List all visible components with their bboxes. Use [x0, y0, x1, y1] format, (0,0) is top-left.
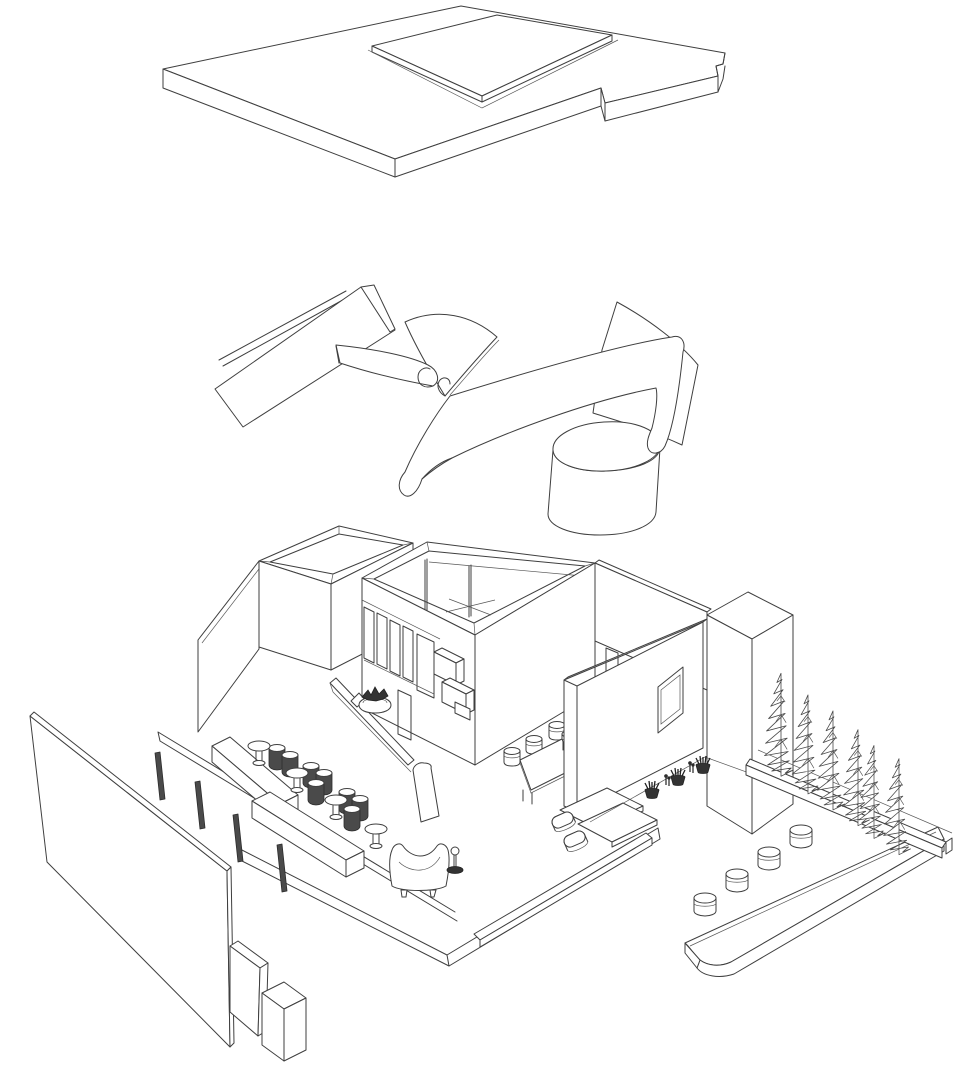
lamp-base [447, 867, 463, 874]
curved-partitions-layer [215, 285, 698, 535]
leaning-column [413, 763, 439, 822]
dark-stool-cluster [339, 789, 368, 832]
glazing-post [155, 752, 165, 800]
armchair-foot [401, 890, 407, 897]
mushroom-side-table [365, 824, 387, 849]
courtyard-stool [726, 869, 748, 892]
tree-planter-end [946, 838, 952, 854]
glazing-post [277, 844, 287, 892]
cylinder-volume [548, 422, 660, 535]
glazing-post [195, 781, 205, 829]
east-wall-end-face [564, 680, 577, 812]
potted-plant [645, 781, 659, 799]
tub-armchair [390, 844, 449, 897]
pill-box [562, 829, 589, 853]
lamp-stem [454, 855, 456, 867]
plinth-curb-top [474, 833, 652, 940]
site-model-layer [30, 526, 952, 1061]
armchair-foot [430, 890, 436, 897]
courtyard-stool [758, 847, 780, 870]
pillar-left-face [707, 615, 752, 834]
exploded-axonometric-drawing [0, 0, 960, 1082]
cypress-tree [884, 759, 911, 855]
courtyard-stool [694, 893, 716, 916]
plant-sprig [665, 775, 671, 786]
west-long-wall [198, 561, 259, 732]
courtyard-stool [790, 825, 812, 848]
dining-stool [504, 748, 520, 767]
armchair-shell [390, 844, 449, 891]
plinth-curb-face [480, 838, 652, 947]
roof-layer [163, 6, 725, 177]
end-box-cube [262, 982, 306, 1061]
potted-plant [671, 768, 685, 786]
lamp-head [451, 847, 459, 855]
glazing-post [233, 814, 243, 862]
pillar-right-face [752, 615, 793, 834]
